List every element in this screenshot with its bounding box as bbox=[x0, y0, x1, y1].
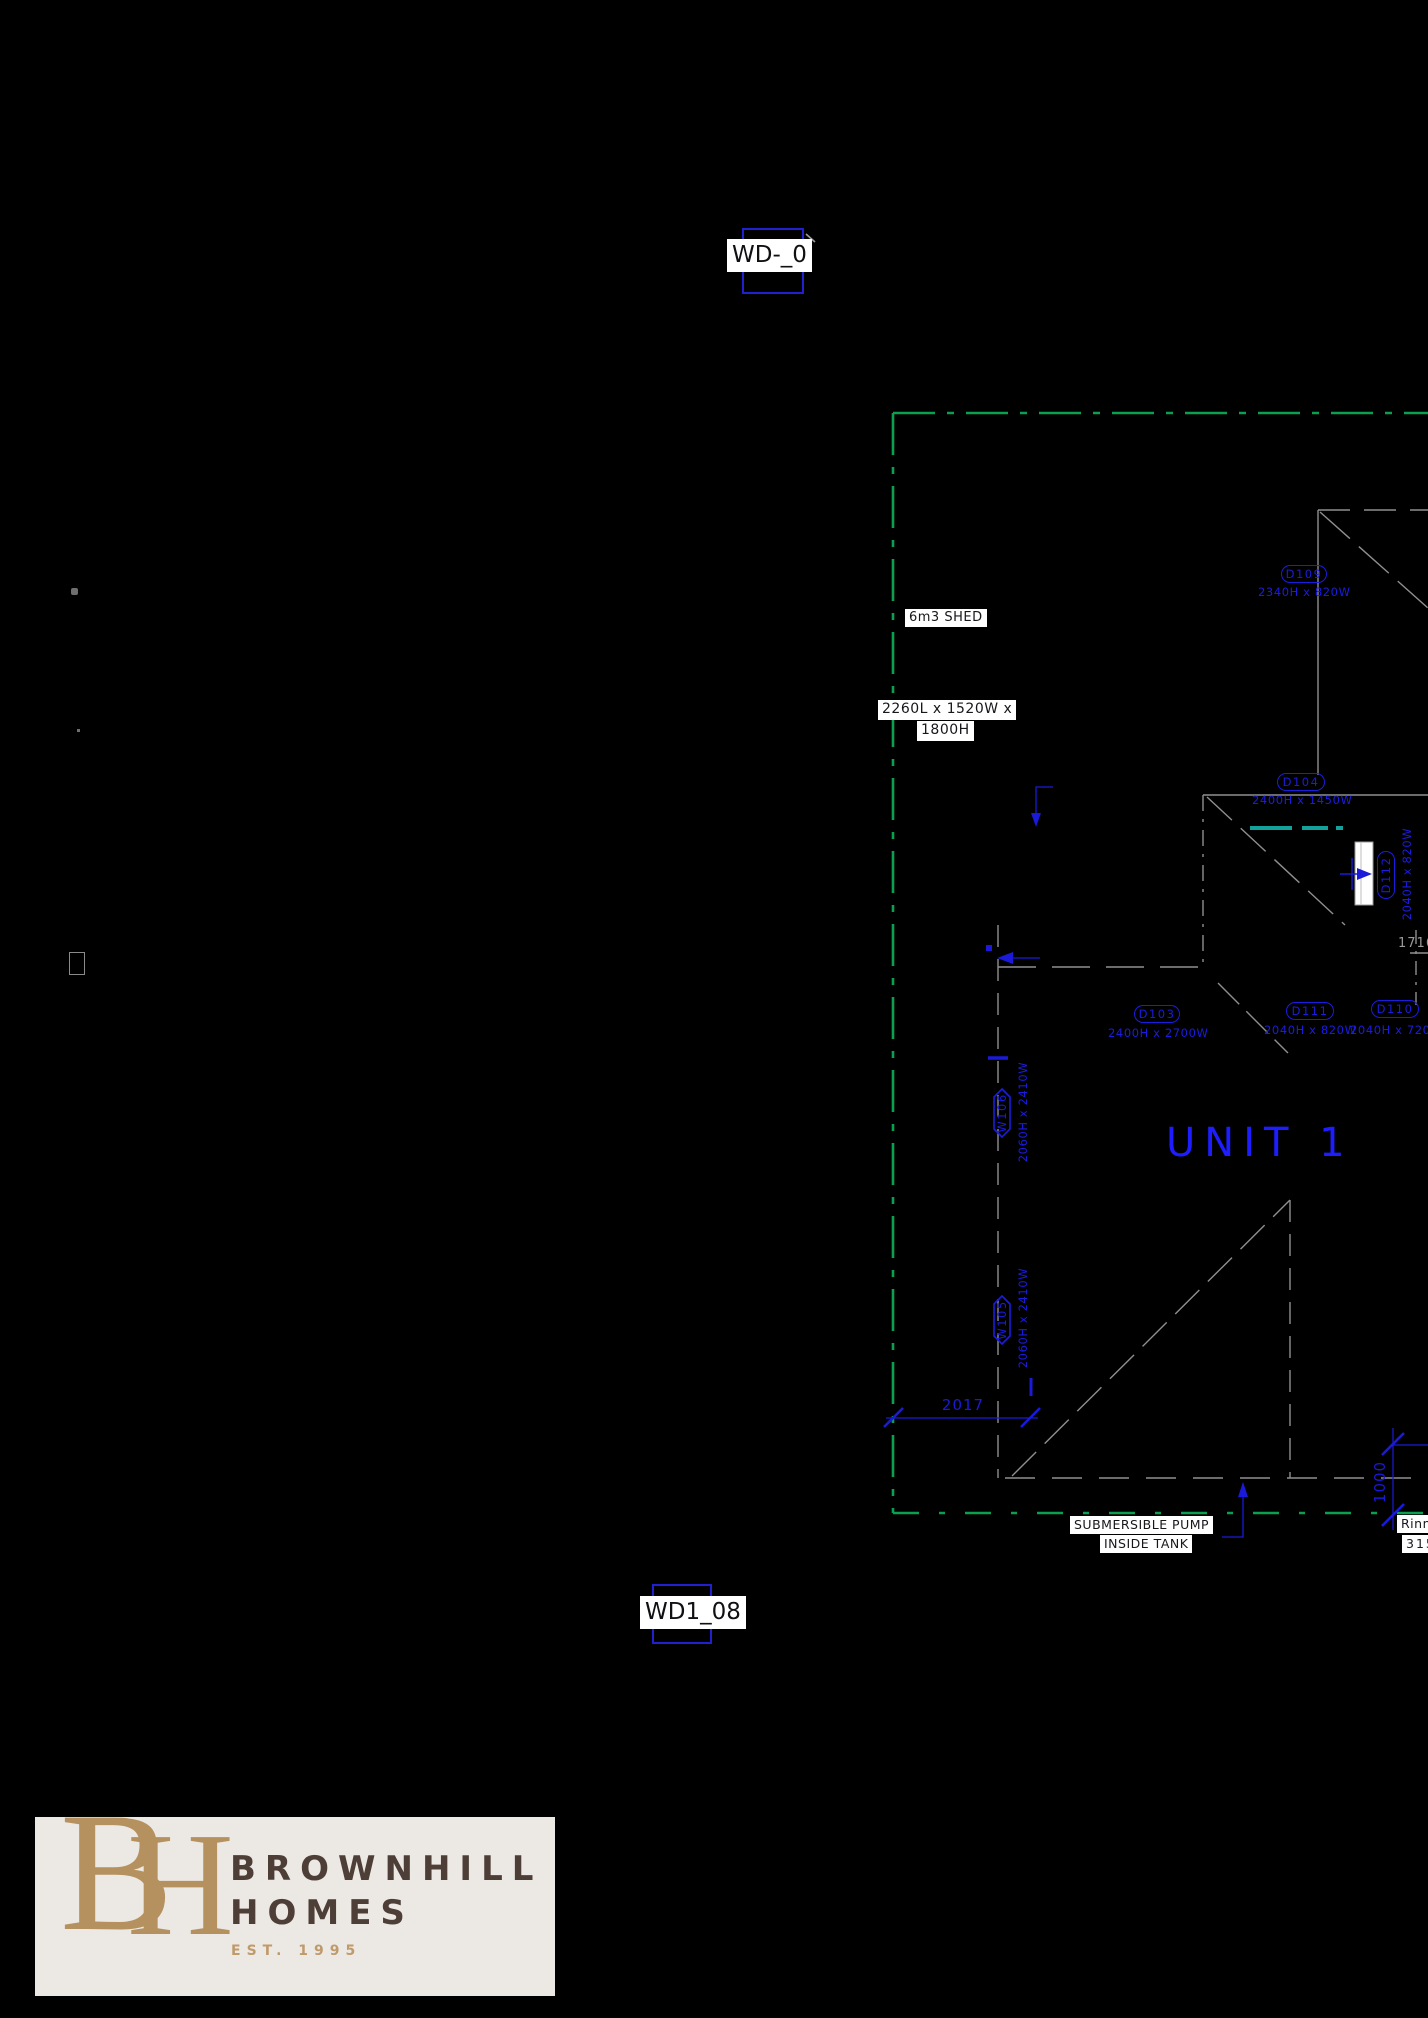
brand-established: EST. 1995 bbox=[231, 1943, 361, 1959]
door-tag-d112: D112 bbox=[1377, 851, 1395, 899]
door-size-d109: 2340H x 820W bbox=[1258, 585, 1350, 599]
door-tag-d110: D110 bbox=[1371, 1000, 1419, 1018]
xref-label-bottom: WD1_08 bbox=[640, 1596, 746, 1629]
brand-monogram: B H bbox=[35, 1817, 225, 1996]
brand-logo-block: B H BROWNHILL HOMES EST. 1995 bbox=[35, 1817, 555, 1996]
door-tag-d103: D103 bbox=[1134, 1005, 1180, 1023]
brand-name-line2: HOMES bbox=[230, 1893, 414, 1933]
pump-note-line2: INSIDE TANK bbox=[1100, 1535, 1192, 1553]
door-size-d112: 2040H x 820W bbox=[1400, 819, 1414, 929]
door-tag-d104: D104 bbox=[1277, 773, 1325, 791]
window-tag-w106: W106 bbox=[995, 1089, 1009, 1137]
shed-dims-line1: 2260L x 1520W x bbox=[878, 700, 1016, 720]
door-size-d110: 2040H x 720W bbox=[1350, 1023, 1428, 1037]
pump-note-line1: SUBMERSIBLE PUMP bbox=[1070, 1516, 1213, 1534]
door-tag-d109: D109 bbox=[1281, 565, 1327, 583]
site-boundary-lines bbox=[893, 413, 1428, 1513]
shed-dims-line2: 1800H bbox=[917, 721, 974, 741]
window-size-w106: 2060H x 2410W bbox=[1016, 1056, 1030, 1168]
xref-label-top: WD-_0 bbox=[727, 239, 812, 272]
plan-mark-outlet-box bbox=[69, 952, 85, 975]
door-size-d103: 2400H x 2700W bbox=[1108, 1026, 1204, 1040]
edge-note-number: 315 bbox=[1402, 1535, 1428, 1553]
door-size-d111: 2040H x 820W bbox=[1264, 1023, 1354, 1037]
floorplan-linework bbox=[0, 0, 1428, 2018]
door-size-d104: 2400H x 1450W bbox=[1252, 793, 1348, 807]
dim-front: 2017 bbox=[928, 1396, 998, 1414]
window-tag-w105: W105 bbox=[995, 1296, 1009, 1344]
wall-lines bbox=[998, 510, 1428, 1478]
dim-rear: 1000 bbox=[1371, 1459, 1389, 1505]
plan-mark-small-dot bbox=[77, 729, 80, 732]
dim-side: 1716 bbox=[1398, 936, 1428, 951]
edge-note-brand: Rinnai bbox=[1397, 1515, 1428, 1533]
unit-title: UNIT 1 bbox=[1166, 1120, 1354, 1166]
monogram-letter-h: H bbox=[127, 1811, 234, 1959]
brand-name-line1: BROWNHILL bbox=[230, 1849, 542, 1889]
shed-name-label: 6m3 SHED bbox=[905, 609, 987, 627]
plan-mark-dot bbox=[71, 588, 78, 595]
window-size-w105: 2060H x 2410W bbox=[1016, 1262, 1030, 1374]
cad-canvas: { "refs": { "top": "WD-_0", "bottom": "W… bbox=[0, 0, 1428, 2018]
door-tag-d111: D111 bbox=[1286, 1002, 1334, 1020]
